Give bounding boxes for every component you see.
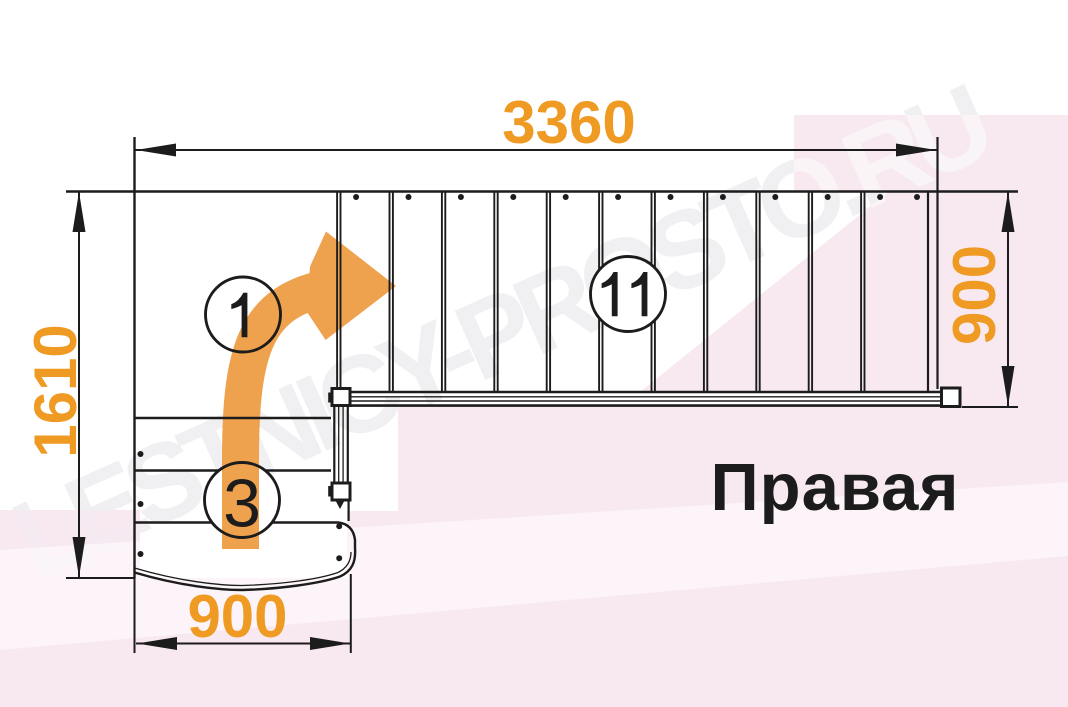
svg-text:900: 900 bbox=[941, 245, 1008, 345]
svg-text:900: 900 bbox=[187, 583, 287, 650]
svg-text:Правая: Правая bbox=[710, 450, 959, 525]
svg-text:3360: 3360 bbox=[502, 89, 635, 156]
svg-text:3: 3 bbox=[223, 466, 261, 542]
svg-text:1610: 1610 bbox=[22, 324, 89, 457]
